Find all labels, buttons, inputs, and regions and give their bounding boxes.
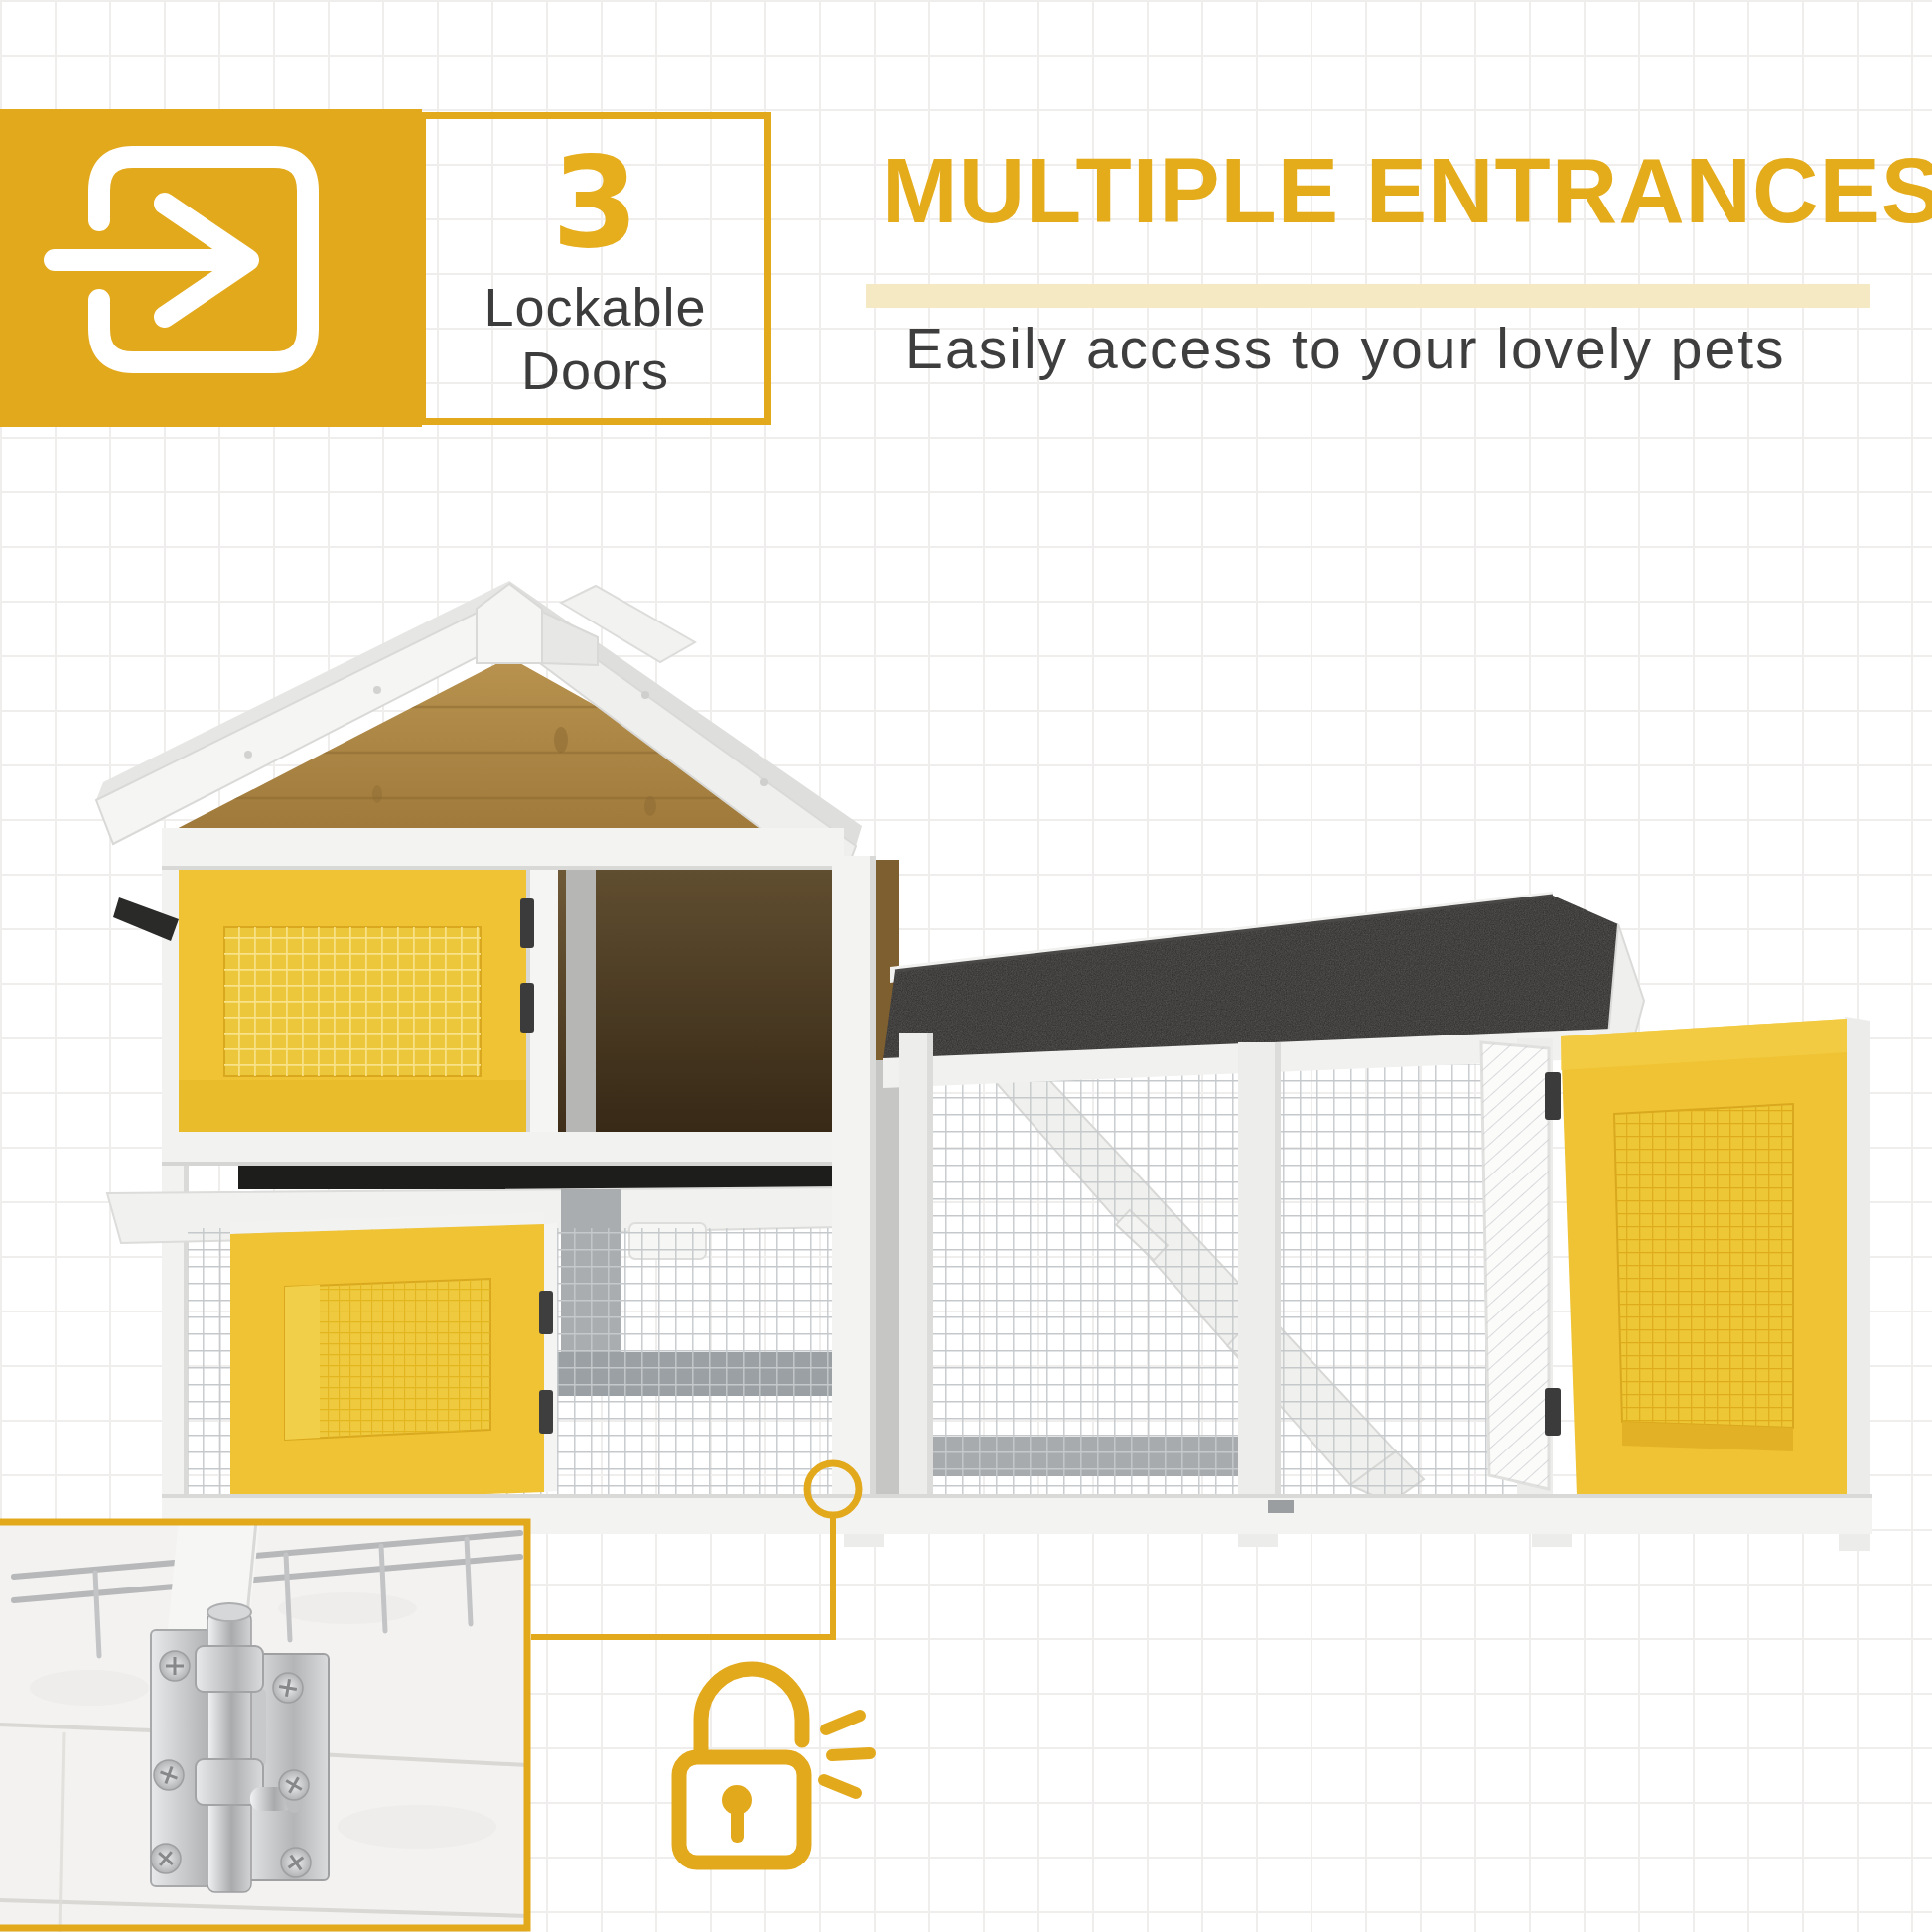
tray-slot bbox=[238, 1166, 839, 1189]
lower-door-hinge bbox=[539, 1291, 553, 1334]
lower-yellow-mesh-door bbox=[230, 1212, 557, 1503]
shine-marks bbox=[824, 1716, 870, 1793]
upper-door-hinge bbox=[520, 898, 534, 948]
run-door-hinge bbox=[1545, 1072, 1561, 1120]
hutch-illustration bbox=[0, 0, 1932, 1932]
latch-inset-photo bbox=[0, 1519, 527, 1932]
run-end-mesh-door-open bbox=[1481, 1042, 1549, 1489]
open-padlock-icon bbox=[679, 1669, 870, 1863]
run-yellow-mesh-door bbox=[1545, 1017, 1870, 1509]
gable-bottom-beam bbox=[162, 828, 844, 870]
lower-door-hinge bbox=[539, 1390, 553, 1434]
run-mesh-panel-left bbox=[933, 1072, 1238, 1494]
upper-yellow-mesh-door bbox=[179, 870, 558, 1132]
run-post bbox=[1238, 1042, 1281, 1494]
hutch-house bbox=[96, 581, 899, 1534]
hutch-run bbox=[874, 884, 1870, 1509]
mid-sill bbox=[162, 1132, 844, 1166]
upper-door-hinge bbox=[520, 983, 534, 1033]
run-door-hinge bbox=[1545, 1388, 1561, 1436]
house-right-post bbox=[832, 856, 876, 1494]
rail-bracket bbox=[1268, 1500, 1294, 1513]
